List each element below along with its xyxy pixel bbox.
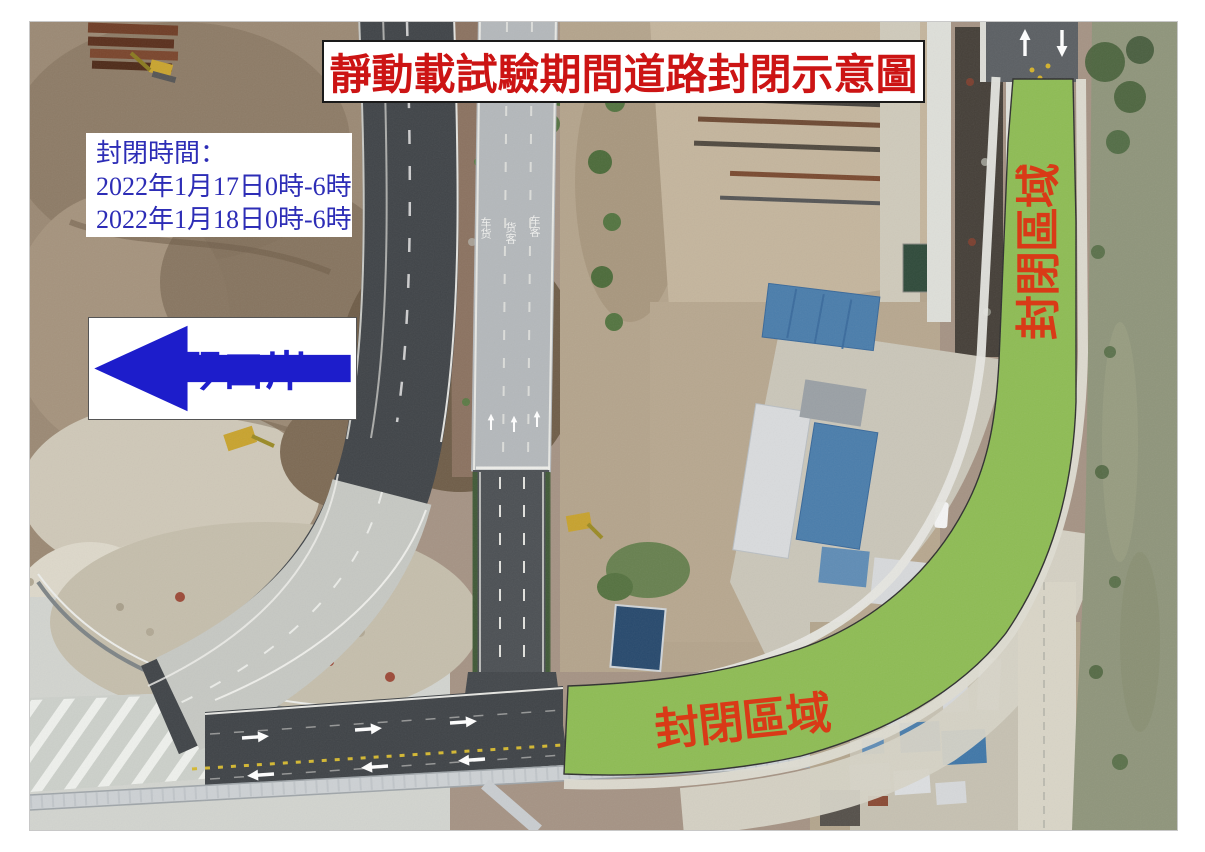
closed-zone-label-right: 封閉區域 — [1015, 163, 1063, 341]
closure-time-heading: 封閉時間： — [96, 137, 352, 170]
closure-date-line: 2022年1月17日0時-6時 — [96, 170, 352, 203]
port-direction-box: 橫琴口岸 — [88, 317, 357, 420]
title-box: 靜動載試驗期間道路封閉示意圖 — [322, 40, 925, 103]
closure-date-line: 2022年1月18日0時-6時 — [96, 203, 352, 236]
left-arrow-icon — [89, 318, 356, 419]
aerial-photo-region: 车货 货客 车客 — [30, 22, 1177, 830]
page-title: 靜動載試驗期間道路封閉示意圖 — [329, 41, 917, 102]
closure-time-box: 封閉時間： 2022年1月17日0時-6時 2022年1月18日0時-6時 — [86, 133, 352, 237]
